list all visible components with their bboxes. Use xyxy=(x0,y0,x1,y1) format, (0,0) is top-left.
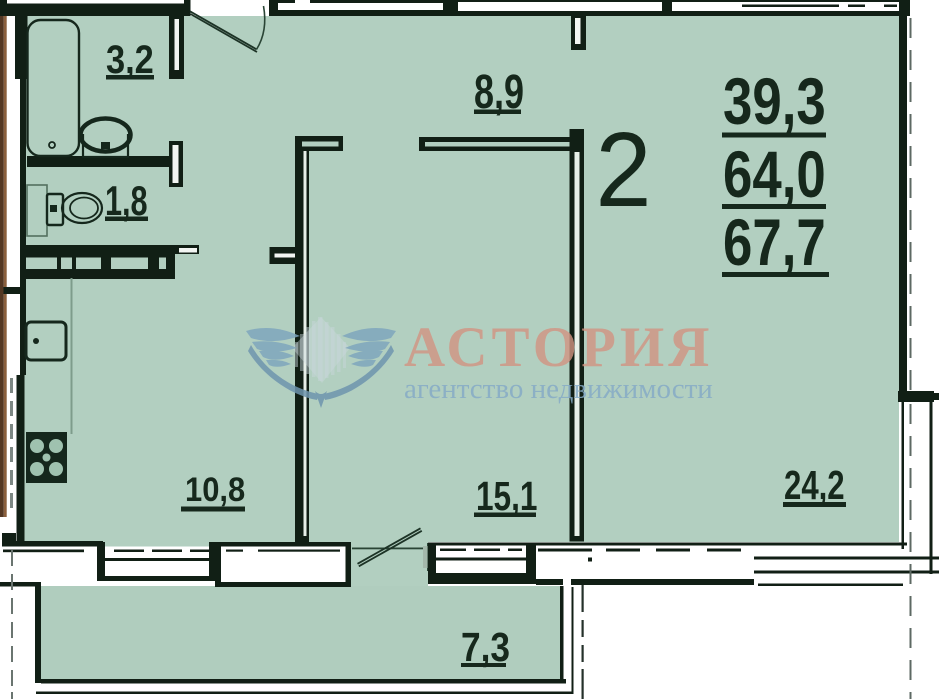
svg-text:3,2: 3,2 xyxy=(106,37,154,82)
svg-text:39,3: 39,3 xyxy=(723,64,826,138)
svg-text:67,7: 67,7 xyxy=(723,205,826,279)
svg-text:2: 2 xyxy=(596,110,652,229)
svg-text:24,2: 24,2 xyxy=(784,462,845,508)
svg-text:10,8: 10,8 xyxy=(185,471,245,509)
svg-text:АСТОРИЯ: АСТОРИЯ xyxy=(404,316,713,379)
svg-text:15,1: 15,1 xyxy=(476,473,537,519)
svg-text:64,0: 64,0 xyxy=(723,137,826,211)
svg-text:агентство недвижимости: агентство недвижимости xyxy=(404,373,713,405)
